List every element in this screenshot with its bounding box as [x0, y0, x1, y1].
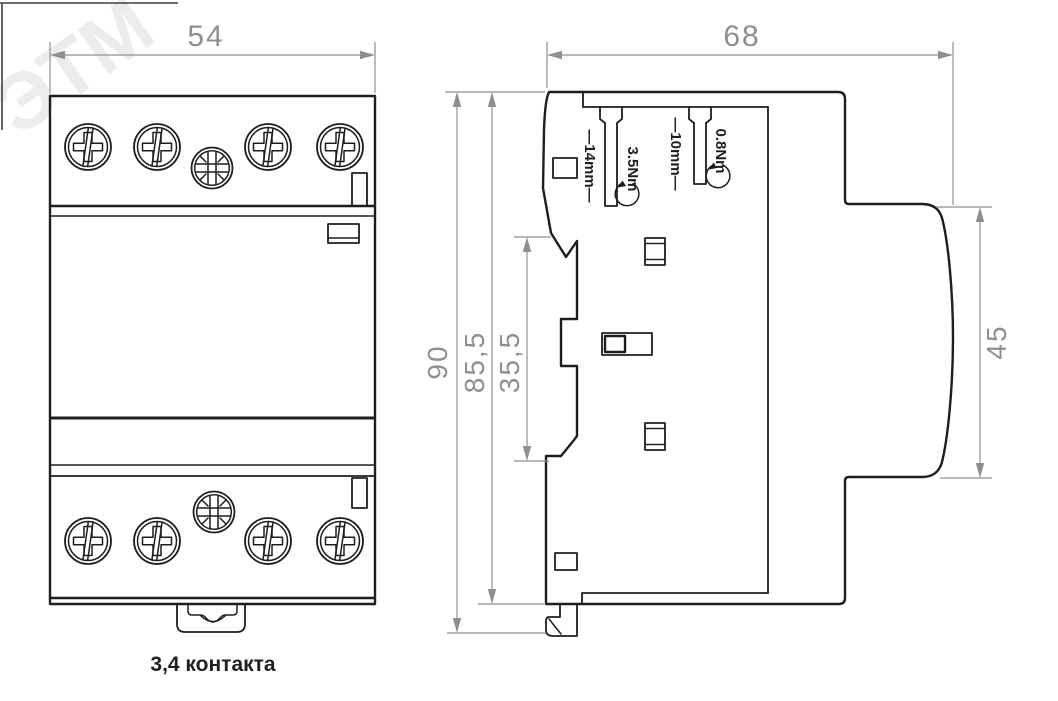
- din-clip-front: [177, 604, 245, 632]
- strip-length-aux-label: —10mm—: [667, 117, 684, 190]
- terminal-screw: [245, 518, 291, 564]
- arrow-up-icon: [488, 92, 496, 107]
- drawing-page: ЭТМ: [0, 0, 1058, 701]
- pozidriv-screw: [194, 492, 235, 533]
- torque-main-label: 3.5Nm: [624, 146, 641, 191]
- terminal-screw: [245, 124, 291, 170]
- switch-indicator: [602, 333, 652, 355]
- arrow-right-icon: [360, 51, 375, 59]
- strip-length-main-label: —14mm—: [581, 129, 598, 202]
- front-right-tab-top: [352, 173, 367, 206]
- front-view-caption: 3,4 контакта: [150, 653, 276, 676]
- terminal-screw: [134, 518, 180, 564]
- indicator-window: [328, 224, 359, 243]
- arrow-down-icon: [976, 463, 984, 478]
- terminal-screw: [134, 124, 180, 170]
- arrow-up-icon: [976, 207, 984, 222]
- dim-label-90: 90: [422, 344, 453, 379]
- technical-drawing: ЭТМ: [0, 0, 1058, 701]
- arrow-right-icon: [938, 51, 953, 59]
- side-window-bottom: [555, 553, 577, 570]
- wire-slot-aux: [689, 107, 711, 184]
- dim-label-68: 68: [723, 20, 760, 53]
- arrow-up-icon: [453, 92, 461, 107]
- arrow-up-icon: [523, 237, 531, 252]
- arrow-down-icon: [523, 446, 531, 461]
- side-view: —14mm— 3.5Nm —10mm— 0.8Nm: [422, 20, 1012, 636]
- side-vent-top: [645, 238, 665, 265]
- dim-label-85-5: 85,5: [459, 331, 490, 394]
- arrow-down-icon: [488, 589, 496, 604]
- terminal-screw: [65, 124, 111, 170]
- dim-label-54: 54: [187, 20, 224, 53]
- terminal-screw: [317, 518, 363, 564]
- side-window-top: [553, 158, 577, 178]
- side-vent-bottom: [645, 423, 665, 450]
- dim-side-width: 68: [547, 20, 953, 205]
- front-view: 54 3,4 контакта: [50, 20, 375, 676]
- wire-slot-main: [600, 107, 622, 206]
- din-rail-clip-side: [546, 604, 577, 636]
- arrow-down-icon: [453, 618, 461, 633]
- dim-label-35-5: 35,5: [494, 331, 525, 394]
- terminal-screw: [317, 124, 363, 170]
- dim-din-channel: 35,5: [494, 237, 551, 461]
- arrow-left-icon: [547, 51, 562, 59]
- dim-label-45: 45: [981, 324, 1012, 359]
- front-right-tab-bottom: [352, 478, 367, 508]
- terminal-screw: [65, 518, 111, 564]
- pozidriv-screw: [192, 148, 233, 189]
